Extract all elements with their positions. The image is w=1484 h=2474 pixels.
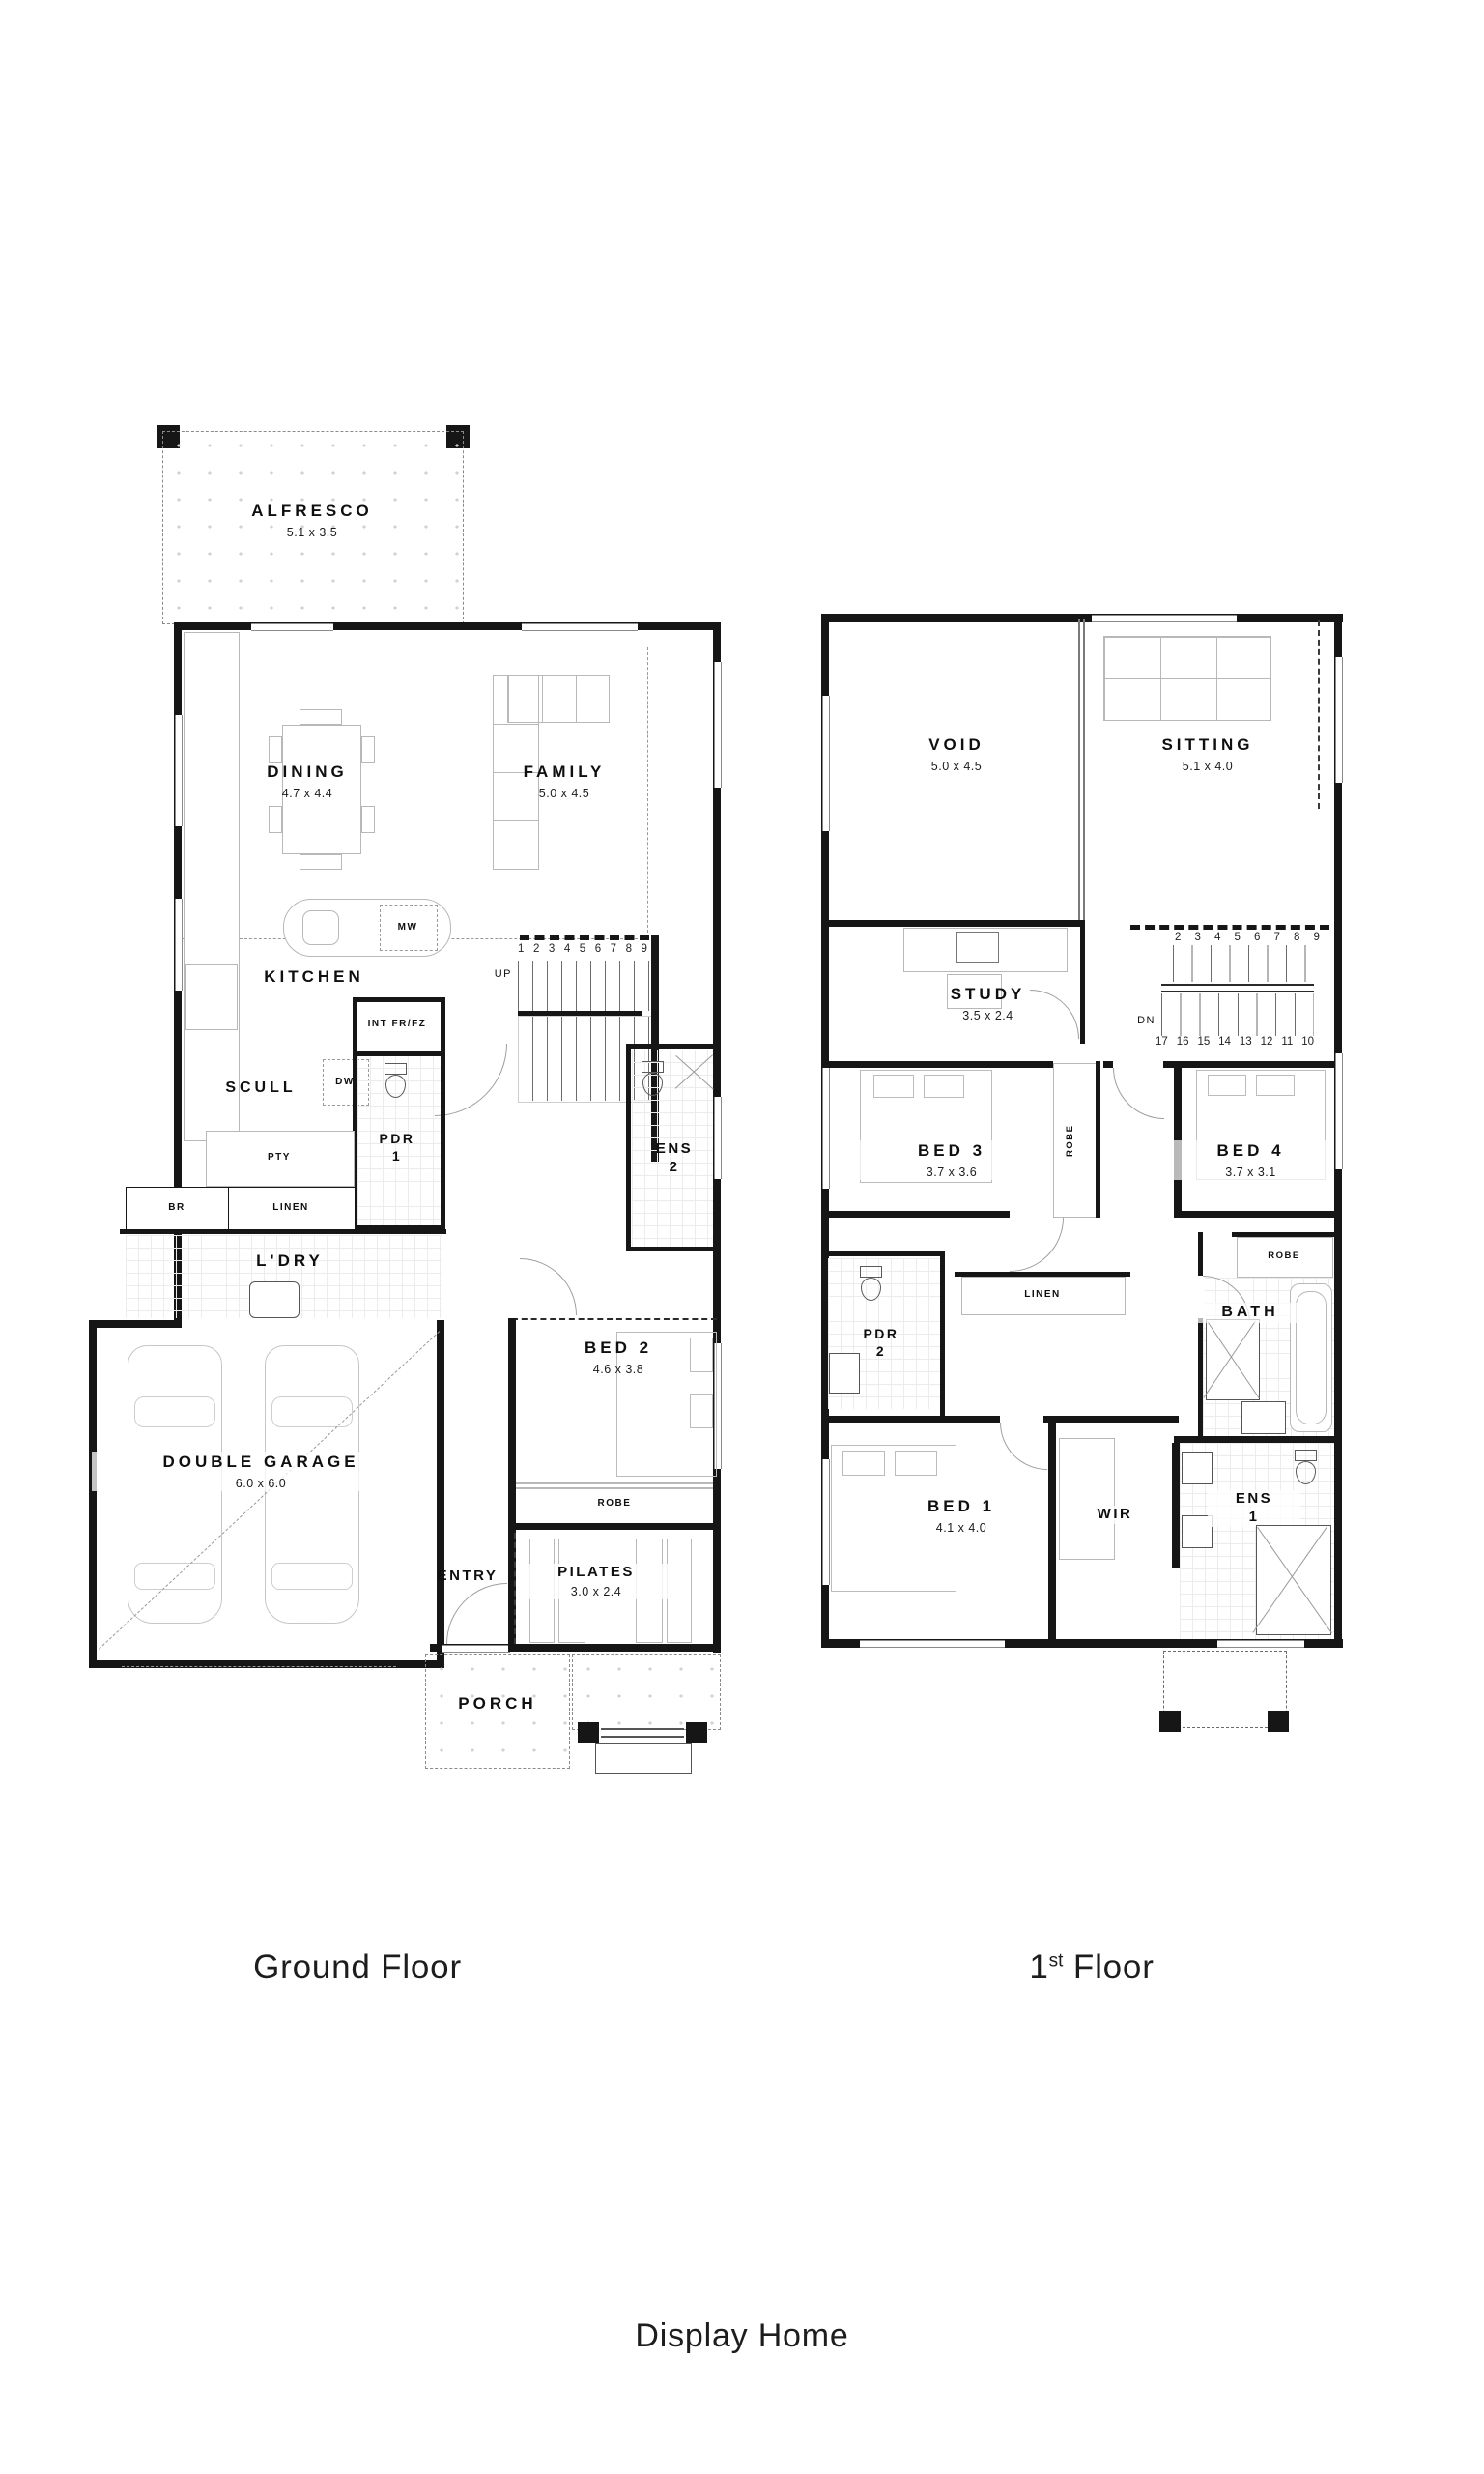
wall	[1174, 1211, 1334, 1218]
window	[251, 623, 333, 631]
room-dims: 4.6 x 3.8	[522, 1362, 715, 1377]
room-name: ENS	[656, 1140, 693, 1157]
stair-tread-number: 4	[564, 943, 570, 955]
room-label-ens1: ENS 1	[1208, 1490, 1300, 1527]
room-label-kitchen: KITCHEN	[217, 966, 411, 988]
display-home-caption: Display Home	[0, 2317, 1484, 2355]
garage-door-line	[122, 1666, 396, 1667]
window	[822, 1459, 830, 1585]
wall	[441, 997, 445, 1229]
ground-floor-plan: ALFRESCO 5.1 x 3.5 MW KITCHEN SCU	[106, 425, 744, 1798]
stair-tread-number: 3	[1195, 932, 1201, 943]
wall	[821, 614, 1343, 622]
door-swing	[1113, 1068, 1164, 1119]
stair-tread-number: 5	[1235, 932, 1241, 943]
room-dims: 5.1 x 3.5	[191, 525, 433, 540]
stair-tread-number: 4	[1214, 932, 1220, 943]
room-name: 2	[670, 1159, 680, 1175]
room-label-bed2: BED 2 4.6 x 3.8	[522, 1338, 715, 1377]
kitchen-counter	[184, 632, 240, 1141]
stair-tread-number: 2	[533, 943, 539, 955]
robe-doors	[516, 1487, 713, 1489]
wall	[1174, 1436, 1334, 1443]
dining-chair-icon	[361, 806, 375, 833]
stair-balustrade	[1130, 925, 1329, 930]
stair-tread-numbers: 17 16 15 14 13 12 11 10	[1156, 1036, 1314, 1048]
stair-tread-number: 6	[1254, 932, 1260, 943]
room-label-scull: SCULL	[184, 1079, 338, 1099]
front-door-opening	[442, 1645, 510, 1653]
balustrade-line	[1318, 620, 1320, 809]
caption-number: 1	[1029, 1948, 1048, 1986]
void-divider	[1078, 618, 1080, 920]
room-name: STUDY	[951, 985, 1026, 1003]
room-name: BED 4	[1216, 1141, 1284, 1160]
caption-word: Floor	[1063, 1948, 1154, 1986]
room-label-wir: WIR	[1065, 1506, 1165, 1524]
room-label-pdr1: PDR 1	[354, 1131, 441, 1165]
wall	[1048, 1423, 1056, 1639]
fridge-label: INT FR/FZ	[354, 1019, 441, 1029]
robe-label: ROBE	[1065, 1100, 1075, 1181]
wall	[821, 1061, 1053, 1068]
wall	[353, 997, 445, 1002]
room-label-ldry: L'DRY	[184, 1251, 396, 1272]
caption-ordinal: st	[1049, 1950, 1064, 1971]
pillow-icon	[873, 1075, 914, 1098]
room-label-bed1: BED 1 4.1 x 4.0	[870, 1496, 1053, 1536]
vanity-icon	[1241, 1401, 1286, 1434]
stair-tread-number: 1	[518, 943, 524, 955]
window	[1335, 1053, 1343, 1169]
door-swing	[1000, 1423, 1047, 1470]
wall	[1172, 1443, 1180, 1568]
room-name: DINING	[267, 762, 348, 781]
wall	[940, 1251, 945, 1416]
sink-icon	[302, 910, 339, 945]
dining-chair-icon	[300, 709, 342, 725]
room-dims: 3.0 x 2.4	[524, 1585, 669, 1600]
room-name: BED 1	[927, 1497, 995, 1515]
room-dims: 3.7 x 3.6	[855, 1165, 1048, 1180]
room-label-garage: DOUBLE GARAGE 6.0 x 6.0	[92, 1452, 430, 1491]
stair-balustrade	[520, 935, 649, 940]
room-label-void: VOID 5.0 x 4.5	[860, 734, 1053, 774]
room-label-ens2: ENS 2	[633, 1140, 716, 1177]
stair-treads	[1173, 945, 1324, 982]
pillow-icon	[1256, 1075, 1295, 1096]
robe-label: ROBE	[516, 1498, 713, 1509]
wall	[1043, 1416, 1179, 1423]
stair-treads	[1161, 993, 1314, 1036]
stair-tread-number: 3	[549, 943, 555, 955]
wall	[626, 1044, 631, 1251]
stair-tread-number: 8	[1294, 932, 1299, 943]
broom-label: BR	[126, 1202, 228, 1213]
porch-side-area	[572, 1654, 721, 1730]
room-name: PILATES	[557, 1564, 635, 1580]
balcony-post	[1268, 1711, 1289, 1732]
stair-treads	[518, 961, 651, 1011]
porch-post	[578, 1722, 599, 1743]
robe-doors	[516, 1482, 713, 1484]
balcony-post	[1159, 1711, 1181, 1732]
room-label-family: FAMILY 5.0 x 4.5	[477, 762, 651, 801]
room-name: BED 3	[918, 1141, 985, 1160]
porch-step	[595, 1743, 692, 1774]
room-name: VOID	[928, 735, 985, 754]
dining-chair-icon	[361, 736, 375, 763]
floorplan-page: ALFRESCO 5.1 x 3.5 MW KITCHEN SCU	[0, 0, 1484, 2474]
toilet-icon	[1293, 1450, 1318, 1484]
window	[1217, 1640, 1304, 1648]
stair-up-label: UP	[479, 968, 512, 980]
stair-tread-number: 14	[1218, 1036, 1231, 1048]
window	[1092, 615, 1237, 622]
room-name: 2	[876, 1343, 886, 1359]
room-dims: 5.1 x 4.0	[1121, 759, 1295, 774]
room-name: DOUBLE GARAGE	[162, 1453, 358, 1471]
stair-tread-number: 12	[1261, 1036, 1273, 1048]
pilates-divider	[514, 1533, 516, 1644]
overhead-beam	[512, 1318, 717, 1320]
microwave-label: MW	[380, 922, 436, 933]
pillow-icon	[924, 1075, 964, 1098]
room-name: BED 2	[585, 1338, 652, 1357]
linen-label: LINEN	[228, 1202, 354, 1213]
hall-robe	[1053, 1063, 1098, 1218]
caption-text: Ground Floor	[253, 1948, 462, 1986]
stair-tread-number: 7	[611, 943, 616, 955]
window	[175, 715, 183, 826]
pillow-icon	[690, 1394, 713, 1428]
wall	[821, 1416, 1000, 1423]
stair-down-label: DN	[1127, 1015, 1156, 1026]
wall	[626, 1247, 721, 1251]
wall	[1080, 920, 1085, 1044]
wall	[508, 1523, 721, 1530]
pillow-icon	[842, 1451, 885, 1476]
porch-post	[686, 1722, 707, 1743]
window	[822, 696, 830, 831]
wall	[1198, 1232, 1203, 1442]
dining-chair-icon	[269, 806, 282, 833]
laptop-icon	[956, 932, 999, 963]
wall	[1174, 1061, 1182, 1218]
first-floor-plan: VOID 5.0 x 4.5 SITTING 5.1 x 4.0 STUDY 3…	[802, 599, 1362, 1769]
toilet-icon	[858, 1266, 883, 1301]
pillow-icon	[1208, 1075, 1246, 1096]
stair-tread-number: 2	[1175, 932, 1181, 943]
stair-tread-number: 11	[1281, 1036, 1293, 1048]
toilet-icon	[383, 1063, 408, 1098]
stair-tread-numbers: 1 2 3 4 5 6 7 8 9	[518, 943, 647, 955]
caption-text: Display Home	[635, 2317, 848, 2354]
robe-label: ROBE	[1237, 1251, 1331, 1261]
room-name: ENS	[1236, 1490, 1272, 1507]
room-name: 1	[1249, 1509, 1260, 1525]
room-label-alfresco: ALFRESCO 5.1 x 3.5	[191, 501, 433, 540]
room-name: PDR	[379, 1131, 414, 1146]
stair-tread-number: 10	[1301, 1036, 1314, 1048]
stair-tread-number: 17	[1156, 1036, 1168, 1048]
wir-shelving	[1059, 1438, 1115, 1560]
stair-tread-number: 5	[580, 943, 585, 955]
window	[175, 899, 183, 991]
room-label-dining: DINING 4.7 x 4.4	[230, 762, 385, 801]
window	[522, 623, 638, 631]
first-floor-caption: 1st Floor	[899, 1948, 1285, 1987]
wall	[821, 1251, 945, 1256]
pantry-label: PTY	[206, 1152, 353, 1163]
door-swing	[1010, 1218, 1064, 1272]
window	[714, 662, 722, 788]
room-label-bath: BATH	[1196, 1303, 1304, 1323]
room-label-pdr2: PDR 2	[833, 1326, 929, 1360]
door-swing	[446, 1583, 507, 1644]
stair-tread-number: 6	[595, 943, 601, 955]
wall	[353, 1051, 445, 1056]
stair-tread-number: 15	[1197, 1036, 1210, 1048]
wall	[626, 1044, 721, 1049]
room-name: ALFRESCO	[251, 502, 373, 520]
room-dims: 5.0 x 4.5	[477, 786, 651, 801]
linen-label: LINEN	[961, 1289, 1124, 1300]
stair-tread-numbers: 2 3 4 5 6 7 8 9	[1175, 932, 1320, 943]
door-swing	[520, 1258, 577, 1315]
garage-wall	[437, 1320, 444, 1668]
stair-tread-number: 8	[626, 943, 632, 955]
room-label-bed4: BED 4 3.7 x 3.1	[1171, 1140, 1330, 1180]
porch-step	[601, 1736, 684, 1738]
room-name: PDR	[863, 1326, 899, 1341]
dining-chair-icon	[269, 736, 282, 763]
room-dims: 6.0 x 6.0	[92, 1476, 430, 1491]
door-swing	[435, 1044, 507, 1116]
room-label-porch: PORCH	[435, 1693, 560, 1714]
dining-chair-icon	[300, 854, 342, 870]
window	[822, 1063, 830, 1189]
ground-floor-caption: Ground Floor	[145, 1948, 570, 1987]
garage-wall	[89, 1320, 97, 1668]
toilet-icon	[640, 1061, 665, 1096]
sofa-icon	[1103, 636, 1271, 721]
room-label-sitting: SITTING 5.1 x 4.0	[1121, 734, 1295, 774]
stair-tread-number: 13	[1240, 1036, 1252, 1048]
room-dims: 4.1 x 4.0	[870, 1520, 1053, 1536]
wall	[1096, 1061, 1100, 1218]
void-divider	[1083, 618, 1085, 920]
basin-icon	[1182, 1452, 1213, 1484]
wall	[821, 920, 1084, 927]
porch-step	[601, 1728, 684, 1730]
laundry-tub-icon	[249, 1281, 300, 1318]
wall	[821, 1211, 1010, 1218]
window	[1335, 657, 1343, 783]
stair-tread-number: 9	[1314, 932, 1320, 943]
room-label-pilates: PILATES 3.0 x 2.4	[524, 1564, 669, 1599]
room-dims: 4.7 x 4.4	[230, 786, 385, 801]
stair-tread-number: 9	[642, 943, 647, 955]
window	[860, 1640, 1005, 1648]
pilates-equipment-icon	[667, 1539, 692, 1643]
room-name: FAMILY	[524, 762, 606, 781]
wall	[120, 1229, 446, 1234]
stair-tread-number: 7	[1274, 932, 1280, 943]
pillow-icon	[895, 1451, 937, 1476]
stair-tread-number: 16	[1177, 1036, 1189, 1048]
room-label-bed3: BED 3 3.7 x 3.6	[855, 1140, 1048, 1180]
stair-handrail	[1161, 984, 1314, 992]
garage-wall	[89, 1320, 182, 1328]
room-name: 1	[392, 1148, 402, 1164]
room-dims: 5.0 x 4.5	[860, 759, 1053, 774]
room-dims: 3.7 x 3.1	[1171, 1165, 1330, 1180]
room-name: SITTING	[1161, 735, 1253, 754]
